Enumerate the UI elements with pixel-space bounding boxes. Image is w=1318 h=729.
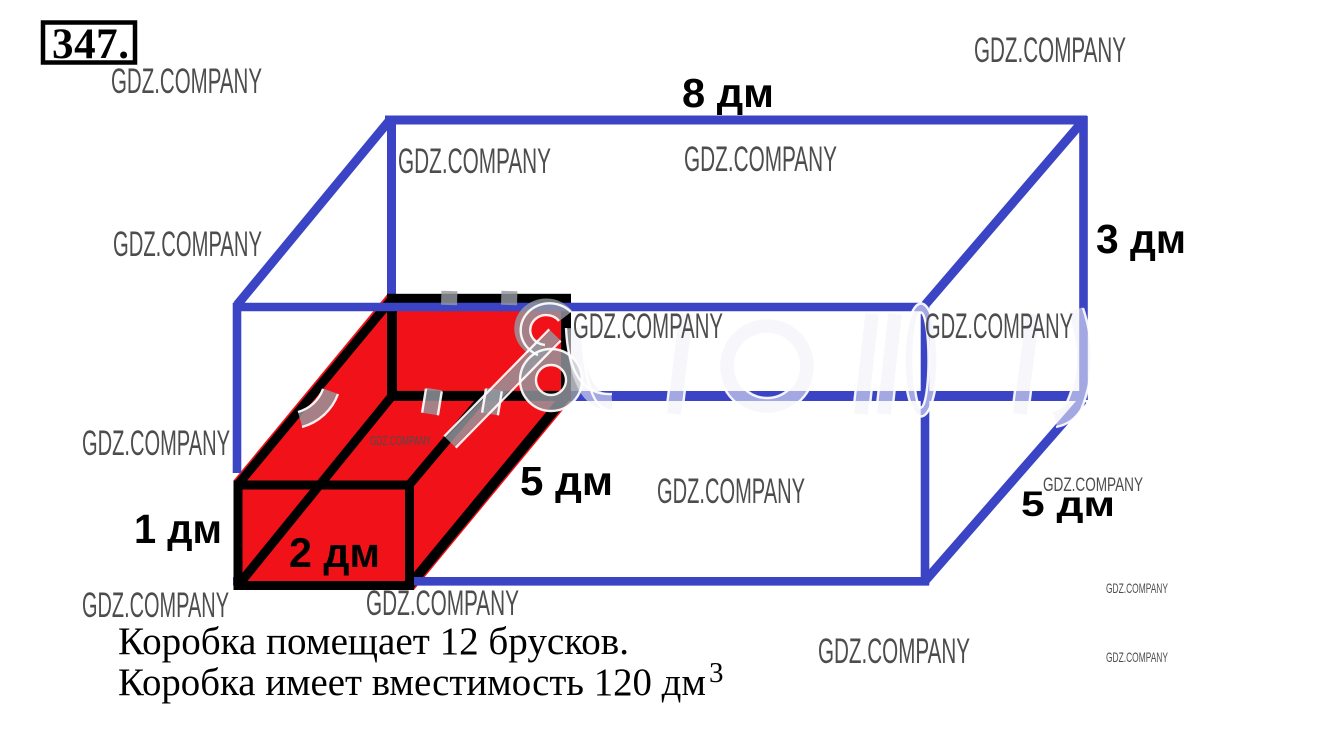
svg-text:GDZ.COMPANY: GDZ.COMPANY <box>1106 649 1168 665</box>
svg-text:347.: 347. <box>52 21 129 68</box>
svg-text:1 дм: 1 дм <box>134 506 222 552</box>
svg-text:2 дм: 2 дм <box>289 529 380 576</box>
svg-text:GDZ.COMPANY: GDZ.COMPANY <box>573 307 723 346</box>
svg-text:GDZ.COMPANY: GDZ.COMPANY <box>684 140 837 179</box>
svg-text:GDZ.COMPANY: GDZ.COMPANY <box>1106 580 1168 596</box>
svg-text:5 дм: 5 дм <box>520 458 613 504</box>
svg-text:GDZ.COMPANY: GDZ.COMPANY <box>111 62 262 101</box>
svg-text:GDZ.COMPANY: GDZ.COMPANY <box>1043 475 1143 496</box>
svg-text:GDZ.COMPANY: GDZ.COMPANY <box>818 632 970 671</box>
svg-text:GDZ.COMPANY: GDZ.COMPANY <box>657 472 805 511</box>
svg-text:GDZ.COMPANY: GDZ.COMPANY <box>974 31 1126 70</box>
svg-text:GDZ.COMPANY: GDZ.COMPANY <box>370 434 431 448</box>
svg-text:3: 3 <box>709 657 724 689</box>
svg-text:GDZ.COMPANY: GDZ.COMPANY <box>82 424 230 463</box>
svg-text:GDZ.COMPANY: GDZ.COMPANY <box>398 142 551 181</box>
svg-text:3 дм: 3 дм <box>1096 216 1186 262</box>
svg-text:GDZ.COMPANY: GDZ.COMPANY <box>925 307 1073 346</box>
svg-text:GDZ.COMPANY: GDZ.COMPANY <box>113 225 262 264</box>
svg-text:GDZ.COMPANY: GDZ.COMPANY <box>366 584 519 623</box>
svg-text:Коробка помещает 12 брусков.: Коробка помещает 12 брусков. <box>118 620 629 663</box>
svg-text:8 дм: 8 дм <box>682 70 774 116</box>
svg-text:Коробка имеет вместимость 120: Коробка имеет вместимость 120 дм <box>118 661 706 704</box>
